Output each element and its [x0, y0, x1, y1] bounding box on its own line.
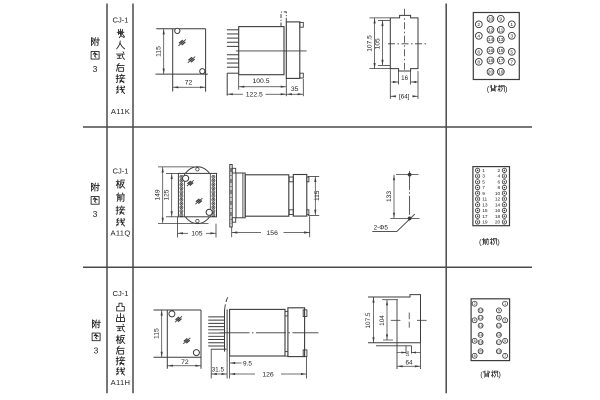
svg-text:A11Q: A11Q: [110, 228, 130, 237]
svg-text:3: 3: [482, 174, 485, 180]
svg-text:31.5: 31.5: [212, 366, 225, 373]
svg-text:7: 7: [504, 354, 506, 358]
svg-text:(: (: [487, 84, 490, 93]
svg-text:72: 72: [185, 80, 193, 87]
svg-text:2-Φ5: 2-Φ5: [374, 224, 389, 231]
svg-text:16: 16: [405, 351, 411, 357]
svg-text:5: 5: [504, 339, 506, 343]
svg-text:9: 9: [482, 191, 485, 197]
svg-text:3: 3: [94, 346, 99, 356]
svg-text:10: 10: [495, 191, 501, 197]
svg-text:5: 5: [510, 49, 513, 55]
svg-text:16: 16: [401, 75, 408, 82]
svg-text:(: (: [480, 370, 483, 379]
svg-text:156: 156: [267, 230, 279, 237]
svg-text:115: 115: [153, 328, 160, 339]
svg-text:7: 7: [510, 59, 513, 65]
svg-text:14: 14: [479, 324, 483, 328]
svg-text:11: 11: [498, 27, 503, 33]
svg-text:17: 17: [498, 58, 504, 64]
svg-text:CJ-1: CJ-1: [112, 166, 128, 175]
svg-text:107.5: 107.5: [365, 312, 372, 328]
svg-text:6: 6: [477, 49, 480, 55]
svg-text:64: 64: [405, 359, 413, 366]
svg-text:4: 4: [477, 33, 480, 39]
svg-text:): ): [497, 238, 500, 247]
svg-text:14: 14: [495, 202, 501, 208]
svg-text:13: 13: [498, 37, 504, 43]
svg-text:4: 4: [498, 174, 501, 180]
svg-text:105: 105: [191, 231, 203, 238]
svg-text:107.5: 107.5: [366, 35, 373, 52]
svg-text:12: 12: [495, 197, 501, 203]
svg-text:): ): [498, 370, 501, 379]
svg-text:16: 16: [479, 333, 483, 337]
svg-text:2: 2: [498, 168, 501, 174]
svg-text:19: 19: [482, 220, 488, 226]
svg-text:20: 20: [488, 69, 494, 75]
svg-text:104: 104: [379, 315, 386, 326]
svg-text:11: 11: [482, 197, 487, 203]
svg-text:19: 19: [497, 350, 501, 354]
svg-text:): ): [505, 84, 508, 93]
svg-text:126: 126: [262, 371, 274, 378]
svg-text:35: 35: [291, 86, 299, 93]
svg-text:2: 2: [477, 22, 480, 28]
svg-text:14: 14: [488, 37, 494, 43]
svg-text:6: 6: [498, 179, 501, 185]
svg-text:3: 3: [93, 209, 98, 219]
svg-text:100.5: 100.5: [252, 78, 269, 85]
svg-text:A11K: A11K: [111, 107, 130, 116]
svg-text:115: 115: [314, 190, 321, 201]
svg-text:122.5: 122.5: [246, 92, 263, 99]
svg-text:10: 10: [488, 16, 494, 22]
svg-text:4: 4: [474, 319, 476, 323]
svg-text:20: 20: [479, 350, 483, 354]
svg-text:16: 16: [488, 48, 494, 54]
svg-text:133: 133: [386, 191, 393, 202]
svg-text:10: 10: [479, 309, 483, 313]
svg-text:1: 1: [482, 168, 485, 174]
svg-text:12: 12: [479, 316, 483, 320]
svg-text:15: 15: [497, 333, 501, 337]
svg-text:1: 1: [510, 22, 513, 28]
svg-text:[64]: [64]: [399, 94, 410, 101]
svg-text:(: (: [479, 238, 482, 247]
svg-text:5: 5: [482, 179, 485, 185]
svg-text:9: 9: [498, 309, 500, 313]
svg-text:3: 3: [93, 64, 98, 74]
svg-text:17: 17: [497, 340, 501, 344]
svg-text:13: 13: [497, 324, 501, 328]
svg-text:11: 11: [497, 316, 501, 320]
svg-text:16: 16: [495, 208, 501, 214]
svg-text:CJ-1: CJ-1: [112, 289, 128, 298]
svg-text:8: 8: [498, 185, 501, 191]
svg-text:9: 9: [499, 16, 502, 22]
svg-text:12: 12: [488, 27, 494, 33]
svg-text:105: 105: [375, 38, 382, 49]
svg-text:72: 72: [181, 359, 189, 366]
svg-text:15: 15: [498, 48, 504, 54]
svg-text:20: 20: [495, 220, 501, 226]
svg-text:125: 125: [164, 189, 171, 200]
svg-text:7: 7: [482, 185, 485, 191]
svg-text:1: 1: [504, 302, 506, 306]
svg-text:8: 8: [474, 354, 476, 358]
svg-text:149: 149: [154, 189, 161, 200]
svg-text:3: 3: [504, 319, 506, 323]
svg-text:2: 2: [474, 302, 476, 306]
svg-text:9.5: 9.5: [243, 360, 252, 367]
svg-text:CJ-1: CJ-1: [112, 16, 128, 25]
svg-text:6: 6: [474, 339, 476, 343]
svg-text:15: 15: [482, 208, 488, 214]
svg-text:8: 8: [477, 59, 480, 65]
svg-text:3: 3: [510, 33, 513, 39]
svg-text:115: 115: [155, 46, 162, 57]
svg-text:17: 17: [482, 214, 488, 220]
svg-text:A11H: A11H: [111, 378, 131, 387]
svg-text:13: 13: [482, 202, 488, 208]
svg-text:18: 18: [495, 214, 501, 220]
svg-text:18: 18: [479, 340, 483, 344]
svg-text:19: 19: [498, 69, 504, 75]
svg-text:18: 18: [488, 58, 494, 64]
